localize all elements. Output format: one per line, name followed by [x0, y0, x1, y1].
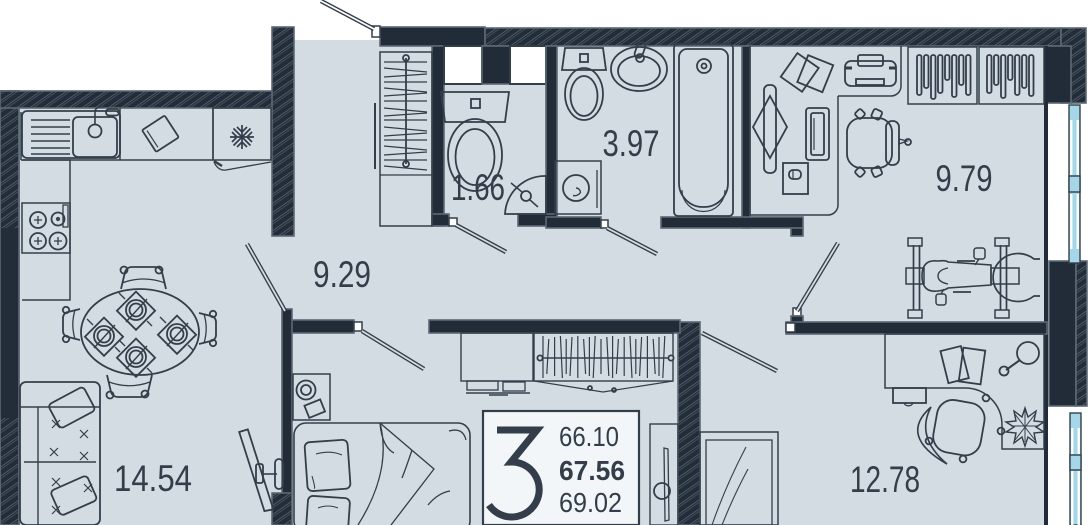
svg-text:67.56: 67.56 — [559, 455, 625, 486]
svg-text:1.66: 1.66 — [451, 166, 505, 208]
svg-text:9.79: 9.79 — [936, 157, 993, 199]
svg-text:9.29: 9.29 — [313, 253, 371, 295]
svg-text:66.10: 66.10 — [559, 421, 619, 452]
svg-text:12.78: 12.78 — [850, 458, 920, 500]
svg-text:3.97: 3.97 — [603, 122, 660, 164]
svg-text:69.02: 69.02 — [559, 487, 622, 518]
svg-text:14.54: 14.54 — [114, 457, 192, 499]
